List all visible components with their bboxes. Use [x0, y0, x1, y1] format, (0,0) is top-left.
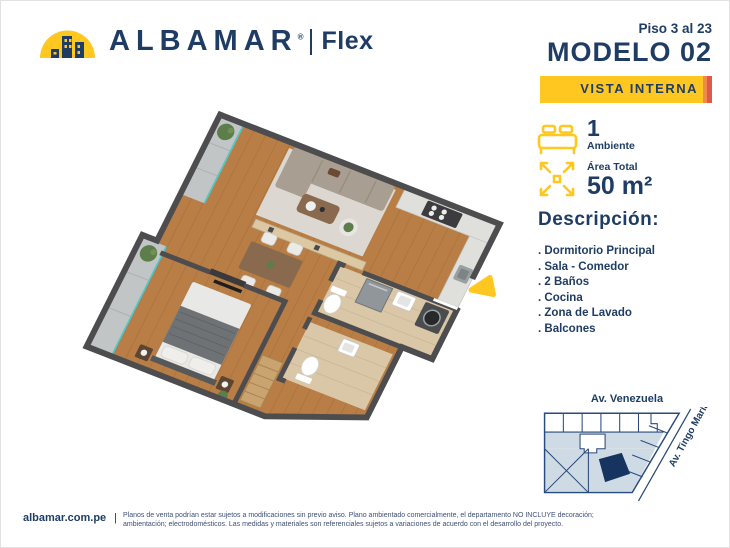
- badge-red-stripe: [707, 76, 712, 103]
- area-spec: Área Total 50 m²: [587, 161, 652, 199]
- description-item: . Balcones: [538, 322, 659, 338]
- description-list: . Dormitorio Principal . Sala - Comedor …: [538, 244, 659, 337]
- footer: albamar.com.pe | Planos de venta podrían…: [23, 512, 594, 529]
- description-item: . 2 Baños: [538, 275, 659, 291]
- brand-logo: ALBAMAR® Flex: [39, 23, 374, 60]
- footer-disclaimer: Planos de venta podrían estar sujetos a …: [123, 512, 594, 529]
- map-diagram: Av. Tingo María: [539, 407, 715, 503]
- description-item: . Dormitorio Principal: [538, 244, 659, 260]
- floors-range: Piso 3 al 23: [540, 21, 712, 36]
- disclaimer-line-2: ambientación; electrodomésticos. Las med…: [123, 521, 594, 530]
- registered-mark: ®: [298, 32, 304, 41]
- footer-divider: |: [114, 512, 117, 524]
- sub-brand: Flex: [322, 27, 374, 56]
- albamar-dome-icon: [39, 23, 97, 60]
- brand-name: ALBAMAR®: [109, 25, 304, 58]
- flyer-page: ALBAMAR® Flex Piso 3 al 23 MODELO 02 VIS…: [0, 0, 730, 548]
- website-url: albamar.com.pe: [23, 512, 106, 524]
- model-header: Piso 3 al 23 MODELO 02 VISTA INTERNA: [540, 21, 712, 103]
- description-item: . Cocina: [538, 291, 659, 307]
- area-value: 50 m²: [587, 173, 652, 199]
- description-item: . Sala - Comedor: [538, 260, 659, 276]
- ambientes-label: Ambiente: [587, 140, 635, 152]
- disclaimer-line-1: Planos de venta podrían estar sujetos a …: [123, 512, 594, 521]
- view-badge-label: VISTA INTERNA: [580, 81, 698, 96]
- description-section: Descripción: . Dormitorio Principal . Sa…: [538, 209, 659, 337]
- ambientes-spec: 1 Ambiente: [587, 116, 635, 152]
- street-label-venezuela: Av. Venezuela: [539, 393, 715, 405]
- bed-icon: [537, 123, 579, 155]
- location-map: Av. Venezuela: [539, 393, 715, 503]
- description-item: . Zona de Lavado: [538, 306, 659, 322]
- area-icon: [537, 159, 577, 199]
- model-title: MODELO 02: [540, 37, 712, 68]
- description-title: Descripción:: [538, 209, 659, 231]
- view-badge: VISTA INTERNA: [540, 76, 712, 103]
- ambientes-value: 1: [587, 116, 635, 140]
- brand-divider: [310, 29, 312, 55]
- floor-plan-render: [56, 99, 526, 454]
